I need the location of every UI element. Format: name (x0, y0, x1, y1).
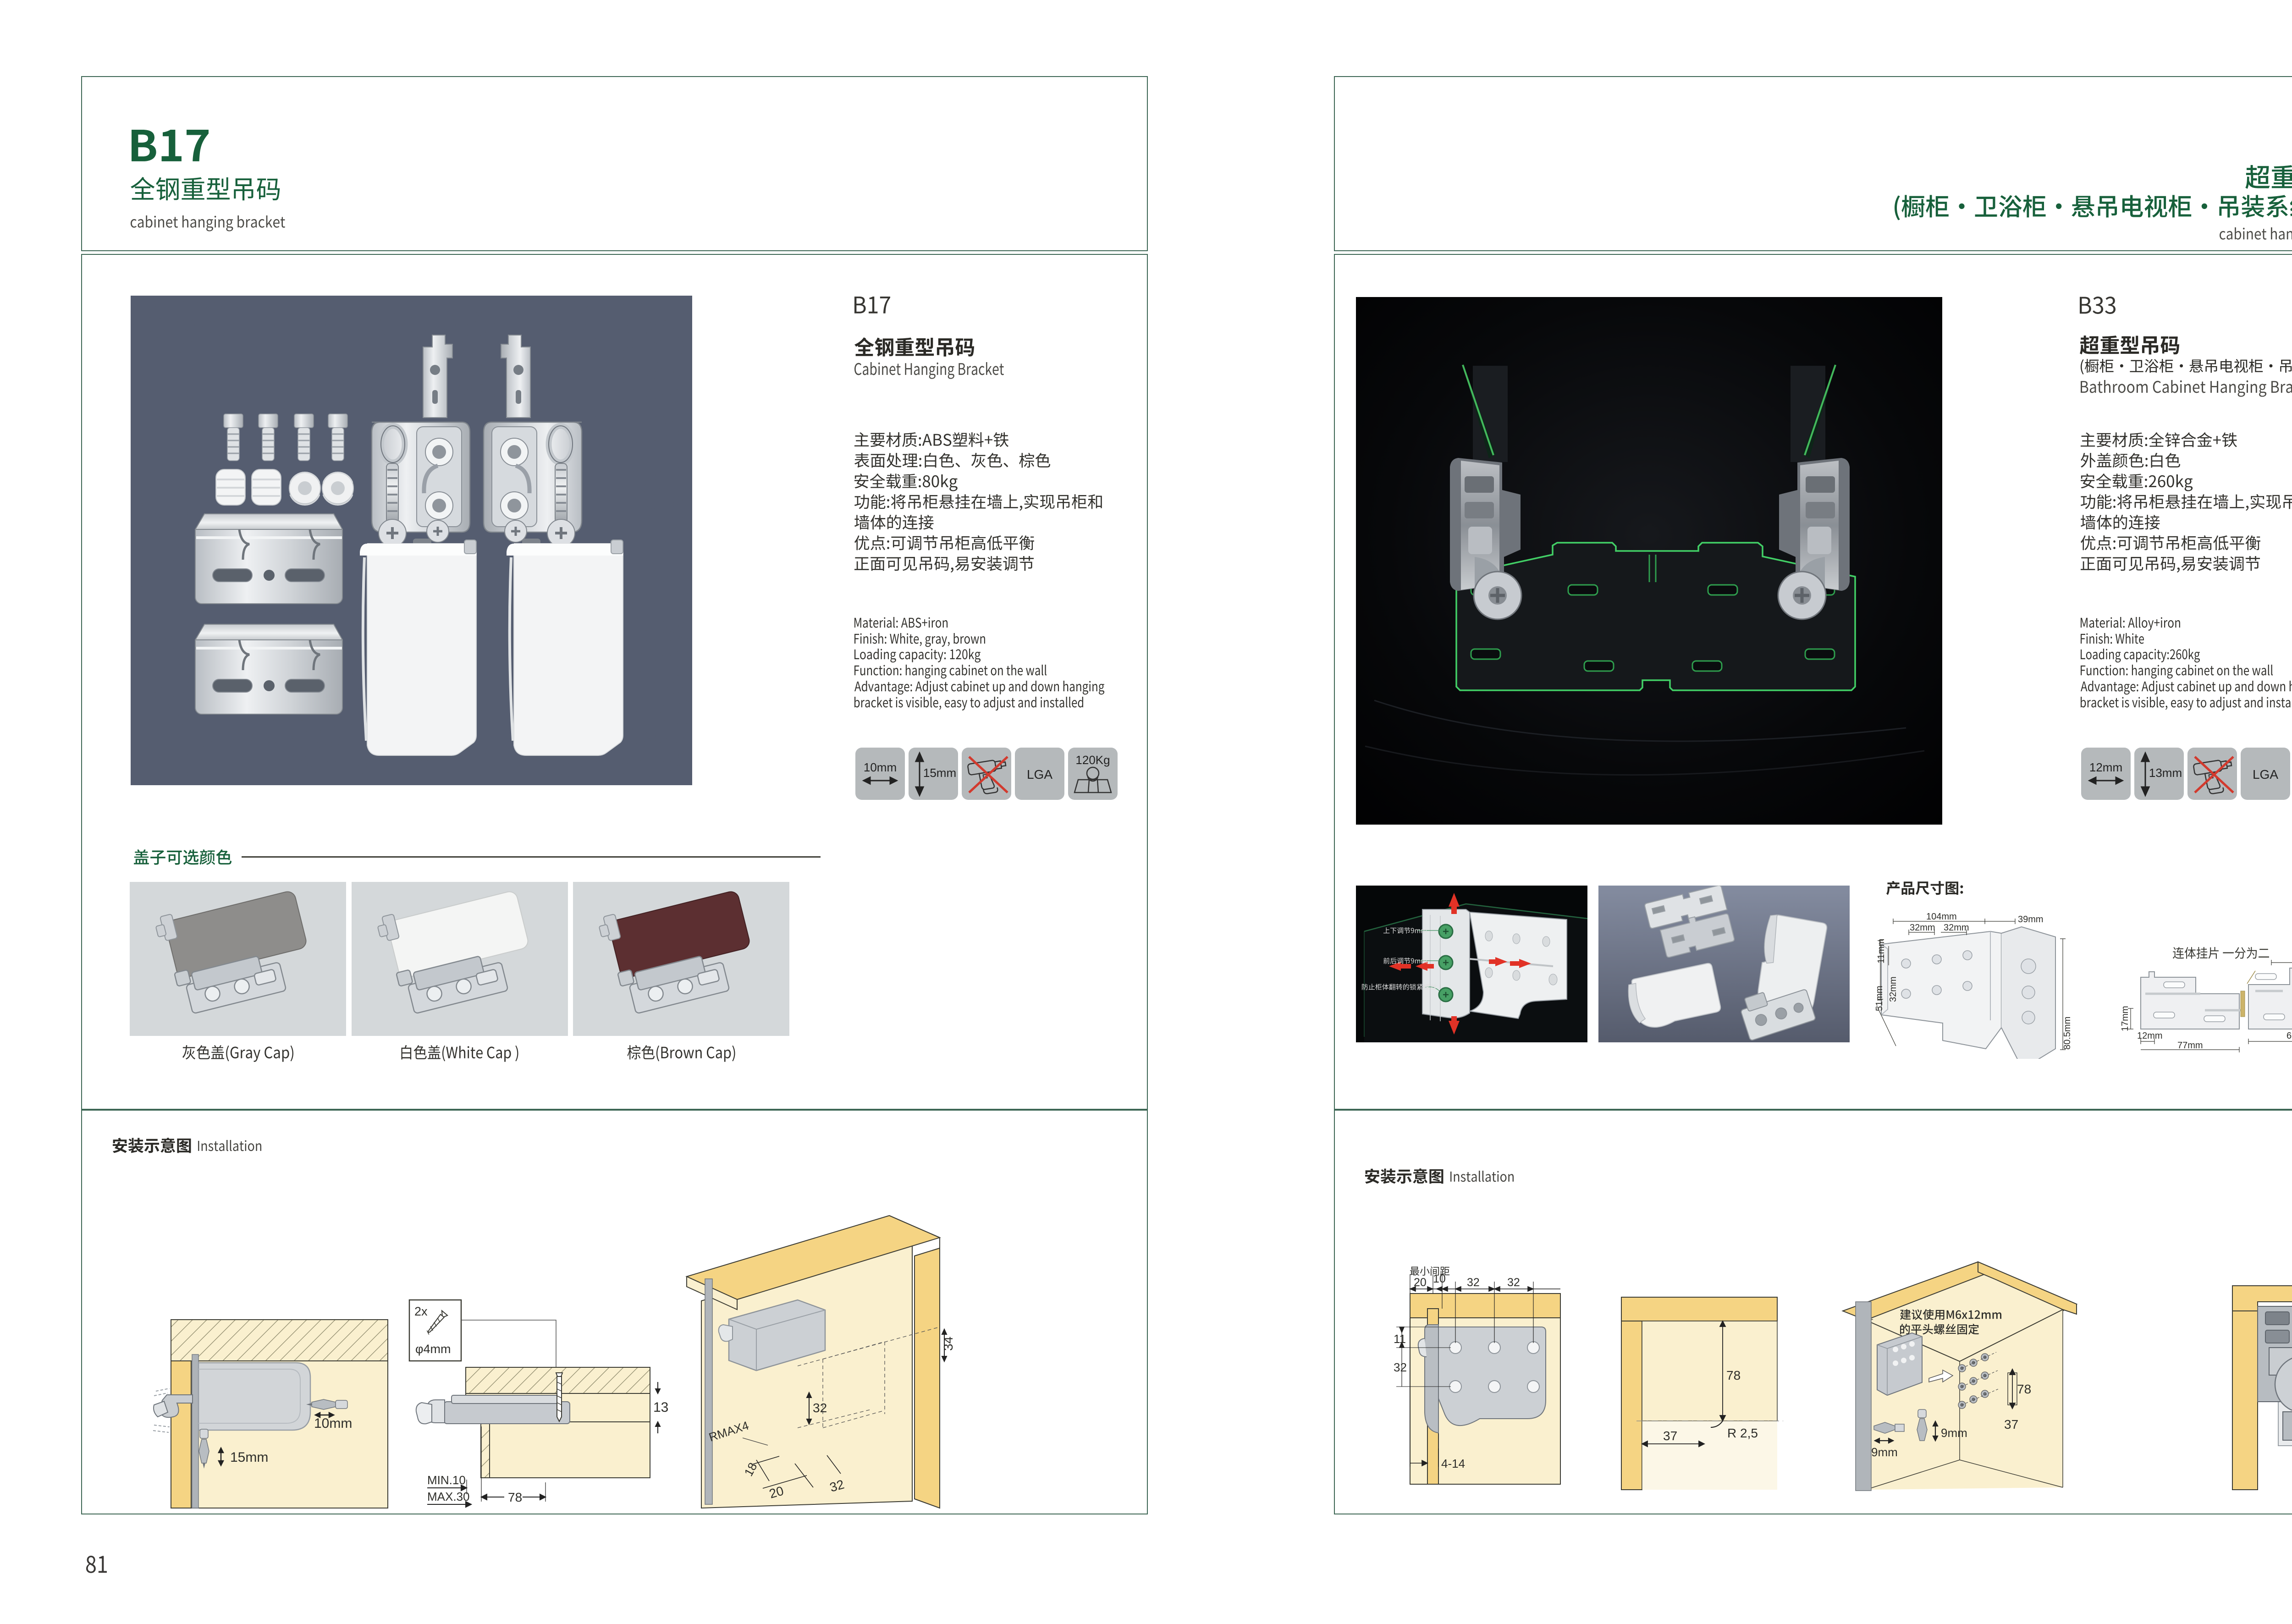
svg-text:2x: 2x (414, 1305, 428, 1318)
svg-text:LGA: LGA (1027, 767, 1052, 782)
svg-text:34: 34 (941, 1337, 955, 1351)
svg-text:32mm: 32mm (1910, 923, 1935, 933)
svg-text:32: 32 (1467, 1276, 1480, 1289)
svg-text:MAX.30: MAX.30 (427, 1490, 470, 1503)
svg-text:63mm: 63mm (2286, 1031, 2292, 1041)
svg-text:11: 11 (1394, 1332, 1406, 1346)
svg-text:39mm: 39mm (2018, 914, 2044, 925)
svg-text:R 2,5: R 2,5 (1727, 1426, 1758, 1440)
svg-text:32: 32 (1394, 1360, 1407, 1374)
svg-text:9mm: 9mm (1871, 1445, 1898, 1459)
svg-text:φ4mm: φ4mm (415, 1342, 451, 1356)
svg-text:51mm: 51mm (1874, 985, 1884, 1011)
svg-text:37: 37 (1663, 1429, 1677, 1443)
svg-text:37: 37 (2004, 1417, 2018, 1431)
svg-text:13mm: 13mm (2149, 766, 2182, 780)
svg-text:104mm: 104mm (1926, 912, 1957, 922)
svg-text:11mm: 11mm (1876, 939, 1886, 963)
svg-text:32mm: 32mm (1888, 976, 1898, 1002)
svg-text:MIN.10: MIN.10 (427, 1473, 466, 1487)
svg-text:10mm: 10mm (314, 1416, 352, 1431)
svg-text:20: 20 (1414, 1276, 1427, 1289)
svg-text:80.5mm: 80.5mm (2062, 1017, 2072, 1050)
svg-text:13: 13 (653, 1400, 668, 1415)
svg-text:32: 32 (1507, 1276, 1520, 1289)
svg-text:78: 78 (508, 1490, 522, 1504)
svg-text:32mm: 32mm (1944, 923, 1969, 933)
svg-text:10mm: 10mm (864, 760, 897, 774)
svg-text:120Kg: 120Kg (1075, 753, 1110, 767)
svg-text:78: 78 (2017, 1382, 2031, 1396)
svg-text:LGA: LGA (2253, 767, 2278, 782)
svg-text:17mm: 17mm (2120, 1006, 2130, 1031)
svg-text:12mm: 12mm (2137, 1031, 2163, 1041)
svg-text:15mm: 15mm (230, 1450, 268, 1465)
svg-text:78: 78 (1726, 1368, 1741, 1382)
svg-text:12mm: 12mm (2089, 760, 2122, 774)
svg-text:9mm: 9mm (1941, 1426, 1967, 1440)
svg-text:32: 32 (813, 1401, 827, 1415)
svg-text:77mm: 77mm (2177, 1040, 2203, 1051)
svg-text:4-14: 4-14 (1441, 1457, 1465, 1470)
svg-text:15mm: 15mm (923, 766, 956, 780)
svg-text:10: 10 (1433, 1272, 1446, 1285)
